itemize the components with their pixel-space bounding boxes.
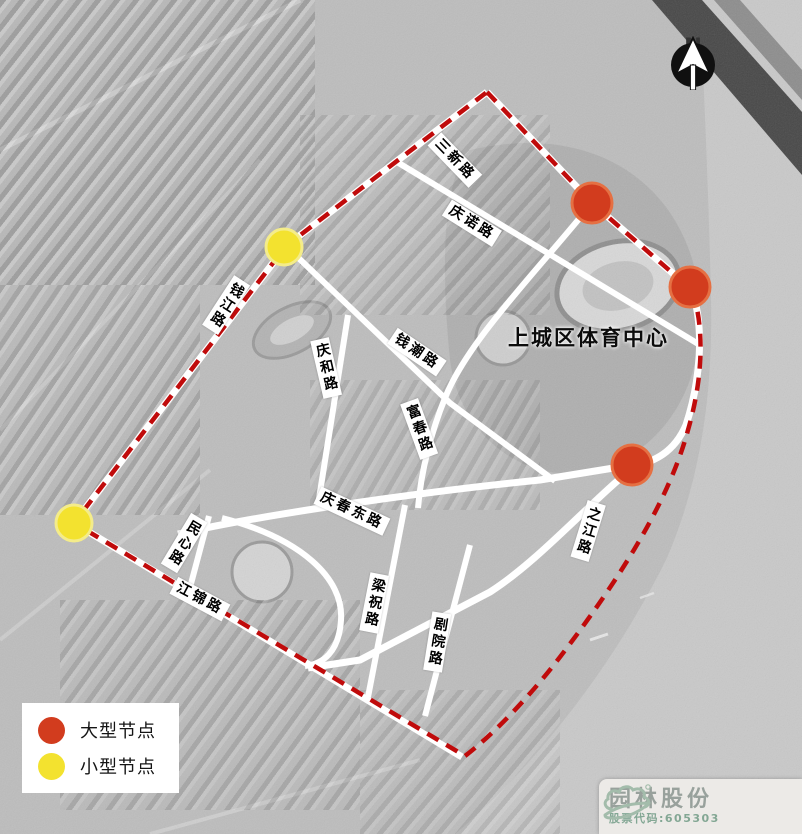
site-title: 上城区体育中心	[508, 322, 669, 352]
small-node-dot-icon	[38, 753, 65, 780]
legend: 大型节点 小型节点	[22, 703, 179, 793]
north-compass: N	[663, 36, 723, 114]
legend-item-large-node: 大型节点	[38, 717, 179, 744]
north-arrow-icon	[663, 36, 723, 90]
road-label-5: 庆和路	[310, 337, 341, 399]
road-label-12: 剧院路	[423, 611, 451, 672]
road-label-6: 富春路	[400, 398, 438, 460]
legend-item-small-node: 小型节点	[38, 753, 179, 780]
road-label-8: 之江路	[570, 500, 605, 562]
road-label-9: 民心路	[161, 513, 207, 573]
road-label-3: 钱江路	[202, 275, 250, 335]
legend-label: 小型节点	[80, 753, 156, 779]
large-node-dot-icon	[38, 717, 65, 744]
road-label-11: 梁祝路	[359, 572, 389, 633]
company-logo-plate: 园林股份 股票代码:605303	[599, 779, 802, 834]
road-label-7: 庆春东路	[314, 486, 391, 535]
road-label-2: 庆诺路	[442, 199, 502, 246]
road-label-4: 钱潮路	[387, 328, 446, 376]
legend-label: 大型节点	[80, 717, 156, 743]
road-label-1: 三新路	[428, 132, 482, 187]
site-plan-map: 三新路庆诺路钱江路钱潮路庆和路富春路庆春东路之江路民心路江锦路梁祝路剧院路 上城…	[0, 0, 802, 834]
cloud-logo-icon	[599, 779, 661, 825]
road-label-10: 江锦路	[170, 577, 231, 621]
